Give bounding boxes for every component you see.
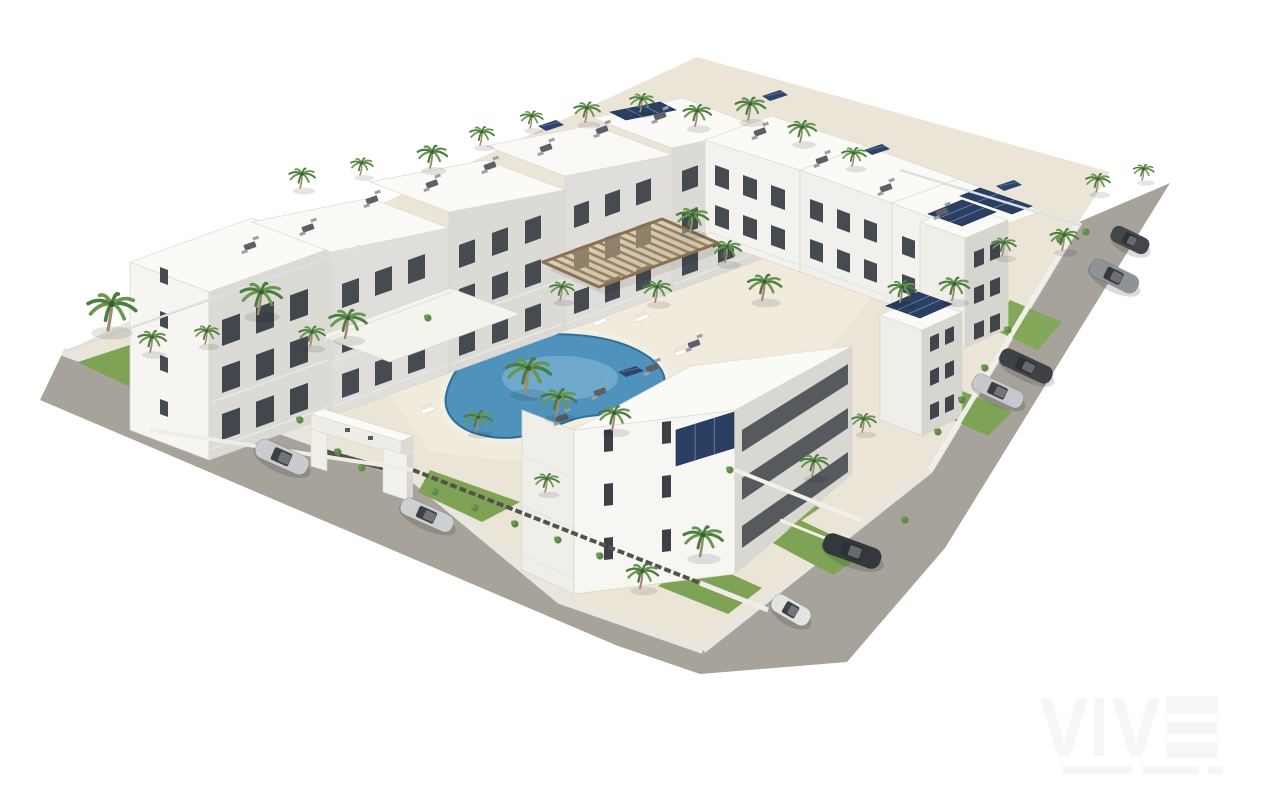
window xyxy=(604,483,613,506)
watermark-notch xyxy=(1166,734,1218,742)
window xyxy=(160,399,168,417)
palm-shadow xyxy=(142,351,166,359)
palm-shadow xyxy=(892,301,916,309)
building-face xyxy=(922,312,962,436)
palm-shadow xyxy=(996,256,1017,263)
building-face xyxy=(130,262,209,460)
palm-shadow xyxy=(846,166,867,173)
palm-shadow xyxy=(804,475,828,483)
palm-shadow xyxy=(856,432,877,439)
palm-shadow xyxy=(602,429,629,438)
palm-shadow xyxy=(293,188,315,195)
gate-pillar xyxy=(383,448,407,500)
palm-shadow xyxy=(244,312,279,323)
apartment-block-east-2 xyxy=(880,298,962,436)
palm-shadow xyxy=(421,167,447,175)
watermark-block xyxy=(1208,766,1222,774)
palm-shadow xyxy=(468,431,492,439)
watermark-block xyxy=(1094,698,1104,756)
palm-shadow xyxy=(680,231,707,240)
building-face xyxy=(880,315,922,436)
palm-shadow xyxy=(1054,249,1078,257)
gate-pillar xyxy=(311,429,327,471)
palm-shadow xyxy=(554,300,575,307)
palm-shadow xyxy=(474,145,495,152)
palm-shadow xyxy=(739,119,765,127)
window xyxy=(662,529,671,552)
palm-shadow xyxy=(687,554,721,565)
window xyxy=(160,267,168,285)
palm-shadow xyxy=(752,299,781,308)
watermark-block xyxy=(1062,766,1132,774)
palm-shadow xyxy=(91,327,133,340)
palm-shadow xyxy=(333,336,365,346)
architectural-render xyxy=(0,0,1280,800)
palm-shadow xyxy=(634,112,655,119)
palm-shadow xyxy=(943,299,969,307)
palm-shadow xyxy=(578,122,600,129)
window xyxy=(662,475,671,498)
palm-shadow xyxy=(647,301,671,309)
render-canvas xyxy=(0,0,1280,800)
palm-shadow xyxy=(687,125,711,133)
palm-shadow xyxy=(354,175,373,181)
palm-shadow xyxy=(630,587,657,596)
gate-logo-mark xyxy=(368,436,373,440)
palm-shadow xyxy=(524,128,543,134)
watermark-notch xyxy=(1166,714,1218,722)
watermark-block xyxy=(1166,696,1218,758)
palm-shadow xyxy=(303,346,325,353)
watermark-block xyxy=(1142,766,1198,774)
window xyxy=(662,421,671,444)
apartment-row-west-corner xyxy=(130,218,331,460)
gate-logo-mark xyxy=(345,428,350,432)
gate-pillar-side xyxy=(407,452,413,500)
palm-shadow xyxy=(199,344,220,351)
palm-shadow xyxy=(1090,192,1111,199)
palm-shadow xyxy=(717,261,741,269)
palm-shadow xyxy=(1137,180,1155,186)
palm-shadow xyxy=(539,492,560,499)
palm-shadow xyxy=(792,141,816,149)
palm-shadow xyxy=(545,414,575,424)
